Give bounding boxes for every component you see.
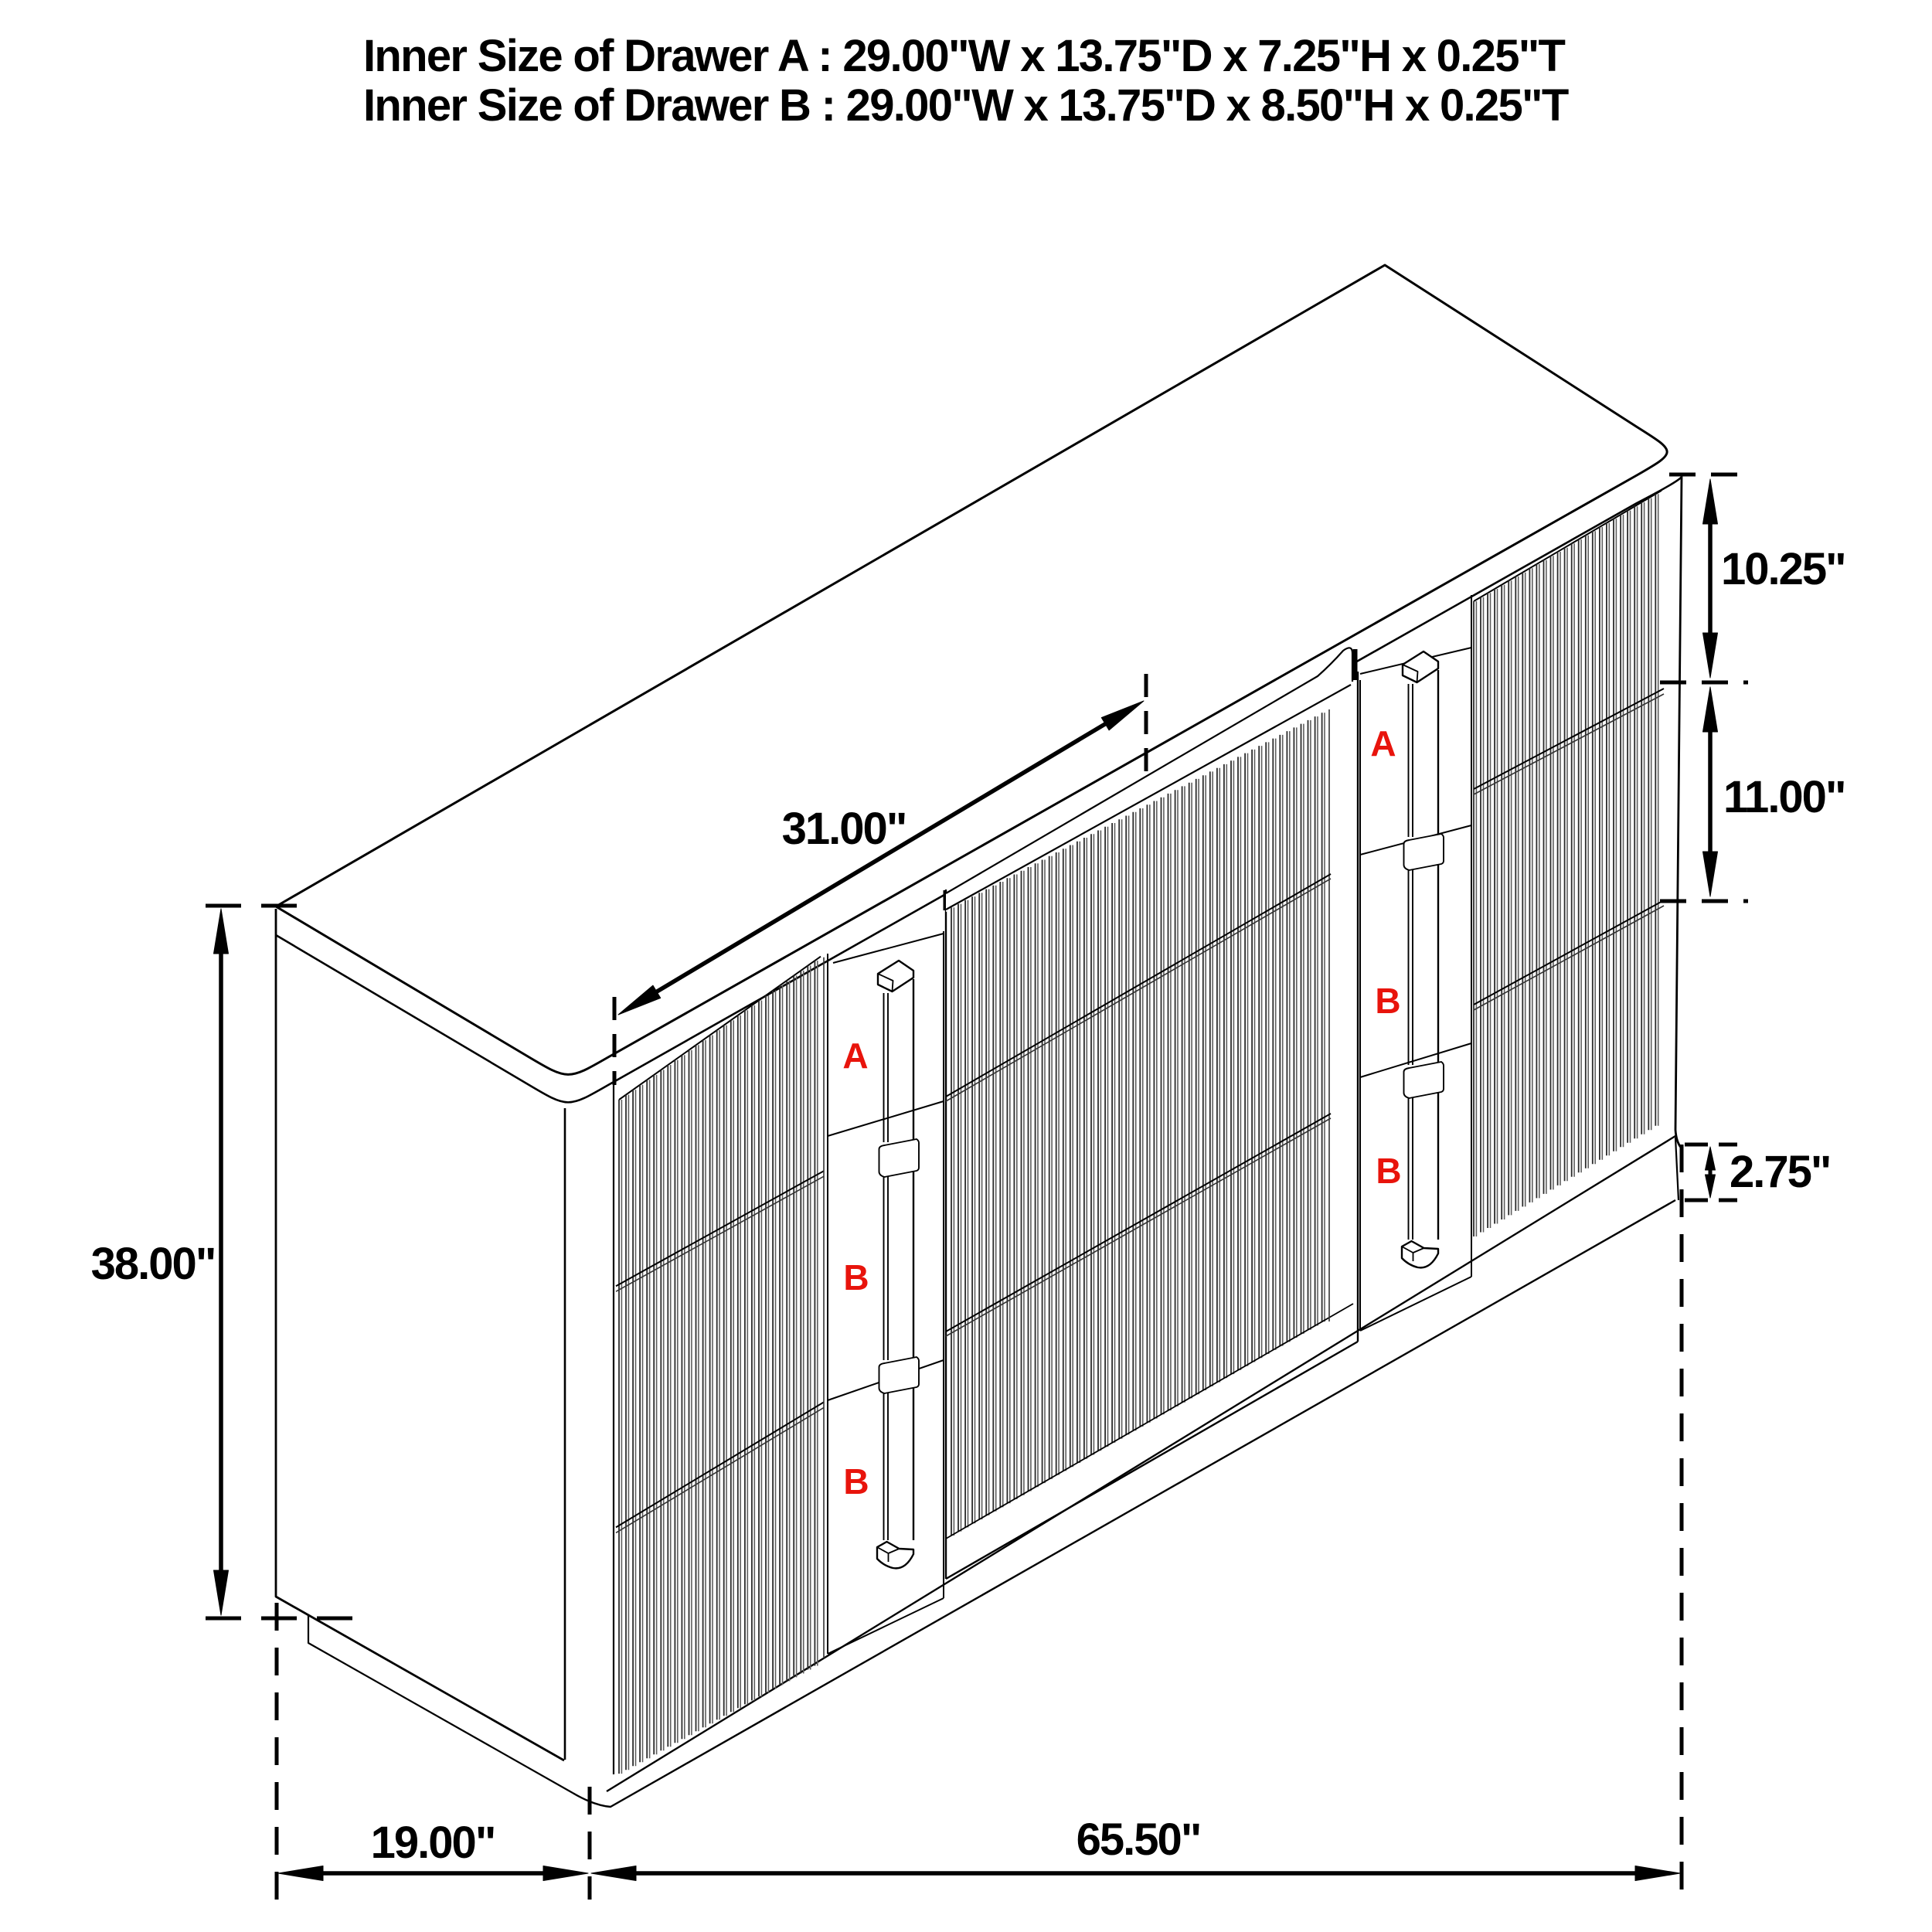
svg-text:38.00": 38.00" <box>91 1239 216 1289</box>
svg-text:B: B <box>1376 1151 1401 1191</box>
svg-text:B: B <box>843 1461 869 1502</box>
svg-text:19.00": 19.00" <box>371 1818 495 1868</box>
svg-text:A: A <box>1370 723 1396 764</box>
svg-text:B: B <box>843 1257 869 1298</box>
svg-text:11.00": 11.00" <box>1723 772 1845 822</box>
svg-text:B: B <box>1375 981 1400 1021</box>
svg-text:10.25": 10.25" <box>1721 544 1845 594</box>
svg-text:A: A <box>842 1036 868 1076</box>
svg-text:Inner Size of Drawer A : 29.00: Inner Size of Drawer A : 29.00"W x 13.75… <box>363 31 1566 81</box>
svg-text:65.50": 65.50" <box>1077 1815 1201 1865</box>
svg-text:31.00": 31.00" <box>782 804 906 854</box>
svg-text:Inner Size of Drawer B : 29.00: Inner Size of Drawer B : 29.00"W x 13.75… <box>363 80 1569 131</box>
svg-text:2.75": 2.75" <box>1730 1147 1830 1197</box>
